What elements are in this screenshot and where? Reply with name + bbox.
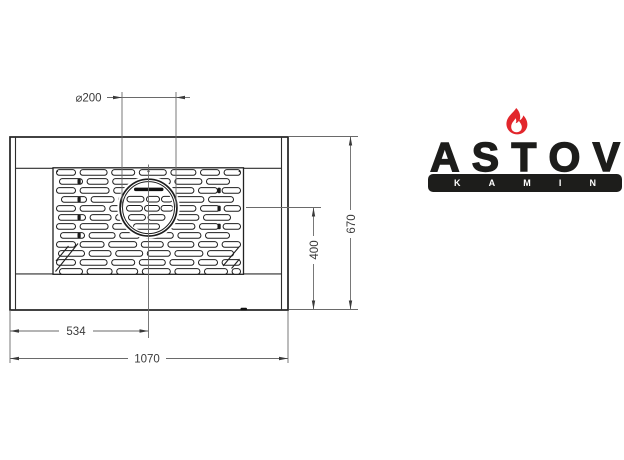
brand-letter: T: [511, 139, 536, 175]
grille-slot: [170, 260, 194, 266]
brand-letter: K: [454, 178, 461, 188]
dim-670-label: 670: [346, 214, 358, 233]
grille-slot: [57, 242, 76, 248]
grille-slot: [207, 179, 230, 185]
grille-slot: [87, 269, 112, 275]
brand-subtitle-bar: KAMIN: [428, 174, 622, 192]
grille-slot-shadow: [78, 233, 81, 239]
dimension-400: 400: [246, 208, 321, 310]
grille-slot: [200, 224, 219, 230]
brand-name: ASTOV: [430, 139, 620, 175]
grille-slot-shadow: [218, 206, 221, 212]
grille-slot-shadow: [78, 215, 81, 221]
grille-slot: [80, 206, 105, 212]
grille-slot: [112, 170, 135, 176]
grille-slot: [204, 215, 231, 221]
grille-slot: [80, 224, 108, 230]
brand-letter: S: [472, 139, 499, 175]
grille-slot: [142, 269, 170, 275]
brand-letter: N: [589, 178, 596, 188]
page: ⌀200 534 1070: [0, 0, 624, 460]
grille-slot: [57, 170, 76, 176]
grille-slot: [139, 170, 166, 176]
grille-slot: [57, 188, 76, 194]
grille-slot: [80, 170, 107, 176]
grille-slot: [62, 197, 87, 203]
grille-slot: [175, 179, 202, 185]
grille-slot-shadow: [78, 179, 81, 185]
grille-slot: [57, 224, 76, 230]
grille-slot: [168, 242, 194, 248]
grille-slot: [117, 269, 138, 275]
grille-slot: [177, 215, 199, 221]
grille-slot: [208, 251, 234, 257]
grille-slot: [224, 170, 240, 176]
grille-slot: [205, 269, 228, 275]
grille-slot: [171, 170, 196, 176]
grille-slot: [147, 251, 170, 257]
grille-slot: [87, 179, 108, 185]
dim-534-label: 534: [66, 326, 86, 338]
grille-slot: [57, 206, 76, 212]
grille-slot-shadow: [218, 224, 221, 230]
grille-slot: [223, 224, 240, 230]
grille-slot-shadow: [78, 197, 81, 203]
dimension-670: 670: [289, 137, 358, 310]
grille-slot: [80, 188, 109, 194]
grille-slot: [232, 269, 240, 275]
brand-letter: V: [593, 139, 620, 175]
fireplace-top-view-drawing: ⌀200 534 1070: [0, 0, 624, 460]
brand-letter: I: [559, 178, 562, 188]
grille-slot: [201, 206, 220, 212]
grille-slot: [80, 260, 107, 266]
grille-slot: [89, 251, 111, 257]
corner-dot: [56, 170, 58, 172]
grille-slot: [141, 242, 163, 248]
grille-slot: [109, 242, 137, 248]
grille-slot: [112, 260, 135, 266]
grille-slot-shadow: [218, 188, 221, 194]
grille-slot: [199, 242, 218, 248]
brand-letter: M: [523, 178, 531, 188]
dim-1070-label: 1070: [134, 353, 160, 365]
grille-slot: [57, 260, 76, 266]
grille-slot: [116, 251, 143, 257]
grille-slot: [61, 233, 85, 239]
grille-slot: [206, 233, 230, 239]
edge-mark: [241, 308, 248, 311]
grille-slot: [222, 242, 240, 248]
grille-slot: [199, 188, 218, 194]
grille-slot: [80, 242, 104, 248]
grille-slot: [199, 260, 218, 266]
grille-slot: [175, 269, 200, 275]
grille-slot: [91, 197, 114, 203]
corner-dot: [239, 170, 241, 172]
grille-slot: [139, 260, 165, 266]
grille-slot: [178, 233, 201, 239]
dimension-534: 534: [10, 310, 149, 363]
grille-slot: [90, 215, 111, 221]
dimension-1070: 1070: [10, 311, 288, 365]
grille-slot: [59, 215, 86, 221]
grille-slot: [201, 170, 220, 176]
grille-slot: [209, 197, 234, 203]
grille-slot: [222, 188, 240, 194]
grille-slot: [89, 233, 115, 239]
dim-diameter-label: ⌀200: [75, 93, 101, 105]
brand-letter: O: [549, 139, 581, 175]
brand-letter: A: [489, 178, 496, 188]
grille-slot: [60, 269, 83, 275]
dim-400-label: 400: [309, 240, 321, 259]
grille-slot: [224, 206, 240, 212]
grille-slot: [175, 251, 203, 257]
grille-slot: [176, 197, 204, 203]
brand-letter: A: [430, 139, 460, 175]
